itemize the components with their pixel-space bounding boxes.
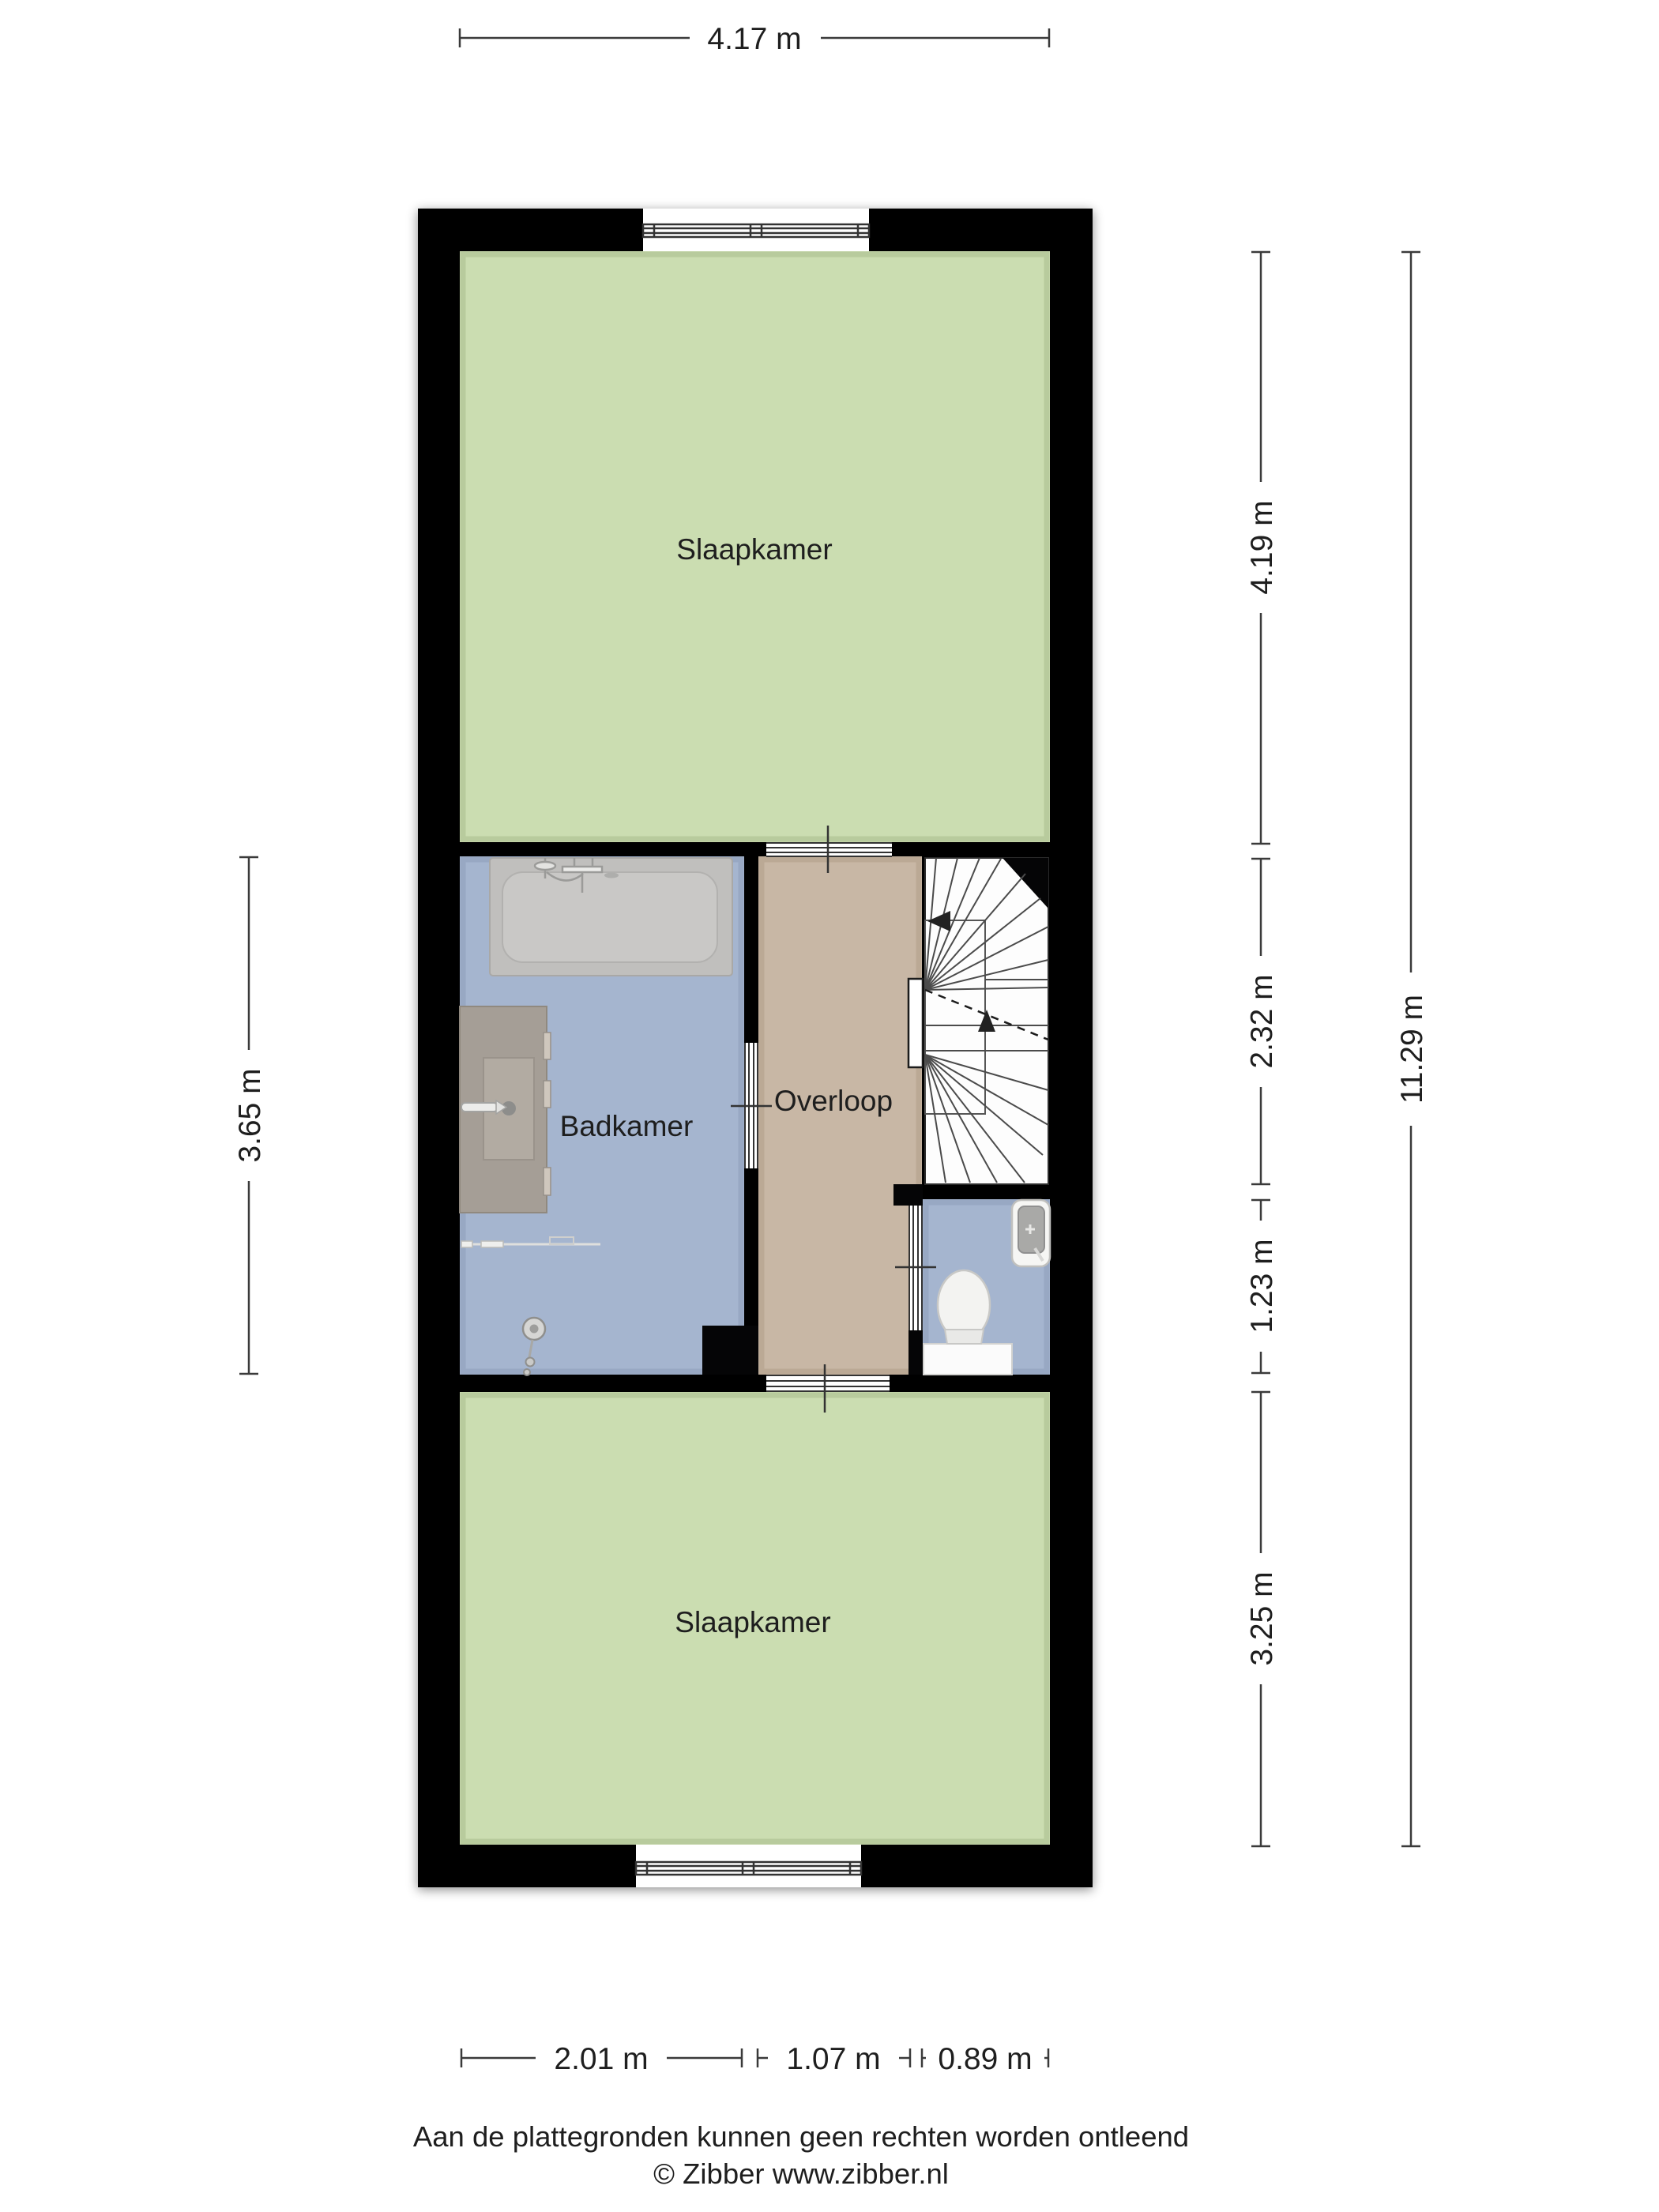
svg-text:Slaapkamer: Slaapkamer [676, 533, 832, 566]
svg-text:Overloop: Overloop [774, 1085, 893, 1117]
svg-text:Slaapkamer: Slaapkamer [675, 1606, 830, 1638]
svg-text:2.32 m: 2.32 m [1245, 974, 1279, 1068]
svg-text:2.01 m: 2.01 m [554, 2042, 648, 2076]
svg-text:0.89 m: 0.89 m [938, 2042, 1032, 2076]
svg-text:Badkamer: Badkamer [560, 1110, 694, 1142]
svg-text:11.29 m: 11.29 m [1395, 995, 1429, 1104]
svg-text:1.07 m: 1.07 m [786, 2042, 880, 2076]
svg-text:© Zibber www.zibber.nl: © Zibber www.zibber.nl [653, 2157, 949, 2190]
svg-text:Aan de plattegronden kunnen ge: Aan de plattegronden kunnen geen rechten… [413, 2120, 1189, 2153]
svg-text:4.17 m: 4.17 m [707, 22, 801, 56]
svg-text:3.65 m: 3.65 m [233, 1068, 267, 1162]
svg-text:4.19 m: 4.19 m [1245, 500, 1279, 594]
svg-text:1.23 m: 1.23 m [1245, 1239, 1279, 1333]
svg-text:3.25 m: 3.25 m [1245, 1571, 1279, 1665]
